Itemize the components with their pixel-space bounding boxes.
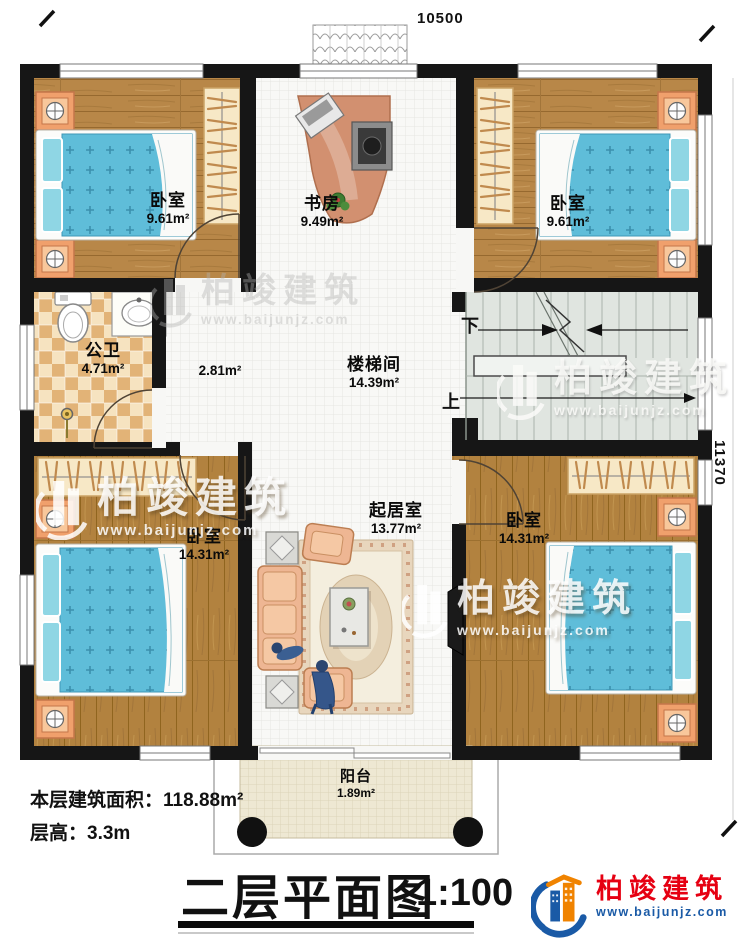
floor-height-value: 3.3m	[87, 823, 130, 844]
label-bedroom-tl: 卧室 9.61m²	[147, 191, 190, 227]
window	[698, 460, 712, 505]
floorplan-page: 卧室 9.61m² 书房 9.49m² 卧室 9.61m² 公卫 4.71m² …	[0, 0, 750, 947]
nightstand	[658, 92, 696, 130]
company-logo: 柏竣建筑 www.baijunjz.com	[531, 874, 728, 938]
coffee-table	[330, 588, 371, 649]
label-hall-area: 2.81m²	[199, 363, 242, 379]
build-info: 本层建筑面积：118.88m² 层高：3.3m	[30, 784, 243, 851]
label-bedroom-br: 卧室 14.31m²	[499, 511, 549, 547]
company-url: www.baijunjz.com	[596, 905, 728, 919]
page-title: 二层平面图	[181, 858, 436, 928]
title-underline-shadow	[178, 932, 474, 934]
label-study: 书房 9.49m²	[301, 194, 344, 230]
nightstand	[658, 704, 696, 742]
stair-down-label: 下	[461, 312, 479, 338]
living-room-furniture	[258, 523, 413, 714]
window	[60, 64, 203, 78]
bed	[36, 544, 186, 696]
label-bedroom-tr: 卧室 9.61m²	[547, 194, 590, 230]
window	[518, 64, 657, 78]
build-area-line: 本层建筑面积：118.88m²	[30, 784, 243, 817]
floor-height-label: 层高：	[30, 823, 87, 844]
nightstand	[658, 240, 696, 278]
label-bedroom-bl: 卧室 14.31m²	[179, 527, 229, 563]
label-bathroom: 公卫 4.71m²	[82, 341, 125, 377]
nightstand	[36, 240, 74, 278]
window	[20, 575, 34, 665]
nightstand	[36, 92, 74, 130]
nightstand	[658, 498, 696, 536]
nightstand	[36, 500, 74, 538]
stair-up-label: 上	[442, 388, 460, 414]
tv	[448, 583, 463, 655]
stair-handrail	[474, 356, 626, 376]
window	[580, 746, 680, 760]
floor-height-line: 层高：3.3m	[30, 817, 243, 850]
build-area-value: 118.88m²	[163, 790, 243, 811]
computer-monitor	[352, 122, 392, 170]
label-living-room: 起居室 13.77m²	[369, 501, 423, 537]
title-underline	[178, 921, 474, 928]
window	[20, 325, 34, 410]
balcony	[214, 746, 498, 854]
window	[698, 318, 712, 430]
balcony-column	[453, 817, 483, 847]
company-name: 柏竣建筑	[596, 874, 728, 905]
window	[300, 64, 417, 78]
toilet	[55, 292, 91, 342]
window	[140, 746, 210, 760]
label-stairwell: 楼梯间 14.39m²	[347, 355, 401, 391]
window	[698, 115, 712, 245]
plan-scale: 1:100	[416, 872, 513, 915]
build-area-label: 本层建筑面积：	[30, 790, 163, 811]
bed	[546, 542, 696, 694]
nightstand	[36, 700, 74, 738]
dimension-top: 10500	[417, 10, 464, 27]
company-logo-icon	[531, 874, 589, 938]
label-balcony: 阳台 1.89m²	[337, 768, 375, 800]
dimension-right: 11370	[711, 440, 728, 486]
